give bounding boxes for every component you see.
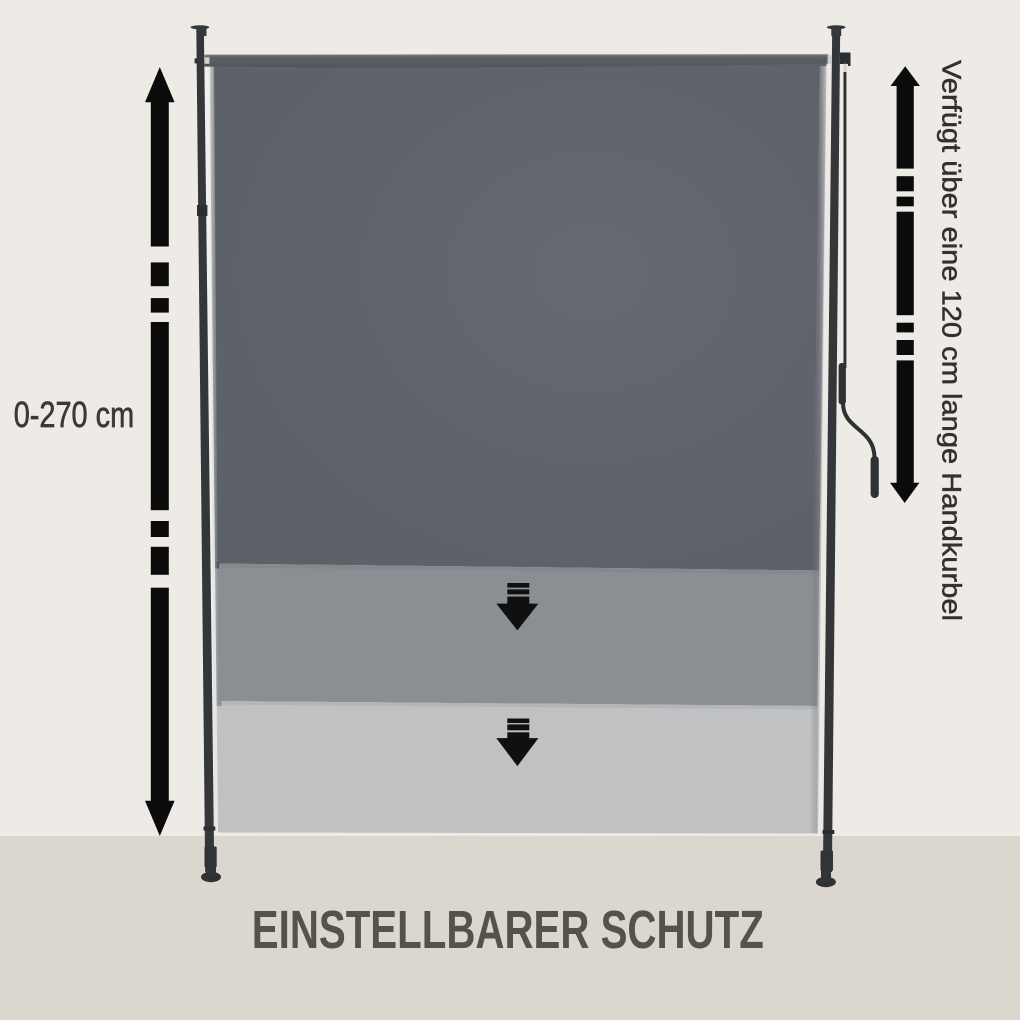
svg-text:Verfügt über eine 120 cm lange: Verfügt über eine 120 cm lange Handkurbe… (937, 60, 967, 621)
svg-text:EINSTELLBARER SCHUTZ: EINSTELLBARER SCHUTZ (252, 900, 764, 960)
svg-text:0-270 cm: 0-270 cm (14, 394, 135, 435)
